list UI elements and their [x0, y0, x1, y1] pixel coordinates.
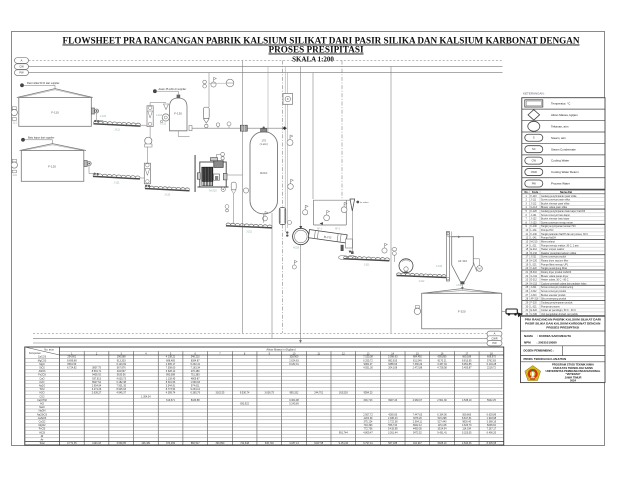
svg-text:Cooling Water: Cooling Water — [551, 159, 569, 163]
svg-text:8170.21: 8170.21 — [438, 359, 447, 362]
svg-text:4265.65: 4265.65 — [388, 413, 397, 416]
svg-text:Mixer pelarut: Mixer pelarut — [541, 240, 555, 243]
svg-text:8.773,54: 8.773,54 — [166, 388, 176, 391]
svg-text:194,947: 194,947 — [413, 442, 422, 445]
svg-text:8.813,95: 8.813,95 — [462, 359, 472, 362]
svg-text:J-122: J-122 — [531, 218, 538, 221]
svg-text:R210: R210 — [260, 171, 268, 175]
svg-text:7.508,60: 7.508,60 — [166, 366, 176, 369]
svg-text:Gudang penyimpanan batu kapur: Gudang penyimpanan batu kapur CaCO3 — [541, 210, 586, 213]
svg-text:J-123: J-123 — [164, 193, 171, 196]
svg-text:F-140: F-140 — [531, 233, 538, 236]
svg-text:G-311: G-311 — [531, 275, 538, 278]
svg-text:S: S — [533, 136, 535, 140]
svg-text:E-322: E-322 — [531, 309, 538, 312]
svg-text:833,922: 833,922 — [240, 402, 249, 405]
svg-text:Pompa HCl: Pompa HCl — [541, 229, 554, 232]
svg-text:Air: Air — [41, 439, 44, 442]
svg-text:3162.55: 3162.55 — [216, 392, 225, 395]
svg-text:Screw conveyor produk: Screw conveyor produk — [541, 256, 567, 259]
svg-text:6.629,89: 6.629,89 — [487, 413, 497, 416]
svg-text:4.538,19: 4.538,19 — [462, 399, 472, 402]
svg-text:406,481: 406,481 — [141, 442, 150, 445]
svg-text:3.396,63: 3.396,63 — [388, 356, 398, 359]
svg-text:5.240,69: 5.240,69 — [289, 402, 299, 405]
svg-text:4.551,30: 4.551,30 — [363, 366, 373, 369]
svg-text:608,975: 608,975 — [487, 356, 496, 359]
svg-text:Kode: Kode — [532, 191, 539, 194]
svg-text:8.301,53: 8.301,53 — [166, 381, 176, 384]
svg-text:1.128,45: 1.128,45 — [166, 377, 176, 380]
svg-text:Screw conveyor batu kapur: Screw conveyor batu kapur — [541, 214, 570, 217]
svg-text:CWR: CWR — [531, 170, 537, 174]
svg-text:PROSES PRESIPITASI: PROSES PRESIPITASI — [268, 45, 363, 55]
svg-text:Al2O3: Al2O3 — [39, 370, 46, 373]
svg-text:1193.43: 1193.43 — [92, 442, 101, 445]
svg-text:567,976: 567,976 — [117, 366, 126, 369]
svg-text:F-320: F-320 — [531, 301, 538, 304]
svg-text:Pompa air proses: Pompa air proses — [541, 305, 561, 308]
svg-text:Cooling Water Return: Cooling Water Return — [551, 170, 579, 174]
svg-text:J-211: J-211 — [246, 231, 252, 234]
svg-text:9997.43: 9997.43 — [388, 399, 397, 402]
svg-text:695,835: 695,835 — [438, 356, 447, 359]
svg-text:6.194,56: 6.194,56 — [437, 413, 447, 416]
svg-text:7.336,29: 7.336,29 — [413, 363, 423, 366]
svg-text:J-312: J-312 — [418, 280, 425, 283]
svg-text:H-220: H-220 — [293, 248, 300, 250]
svg-text:2.954,94: 2.954,94 — [92, 384, 102, 387]
svg-text:2.501,66: 2.501,66 — [437, 399, 447, 402]
svg-text:Screw conveyor produk: Screw conveyor produk — [541, 290, 567, 293]
svg-text:Pompa menuju reaktor, 30 C, 1: Pompa menuju reaktor, 30 C, 1 atm — [541, 244, 579, 247]
svg-text:2.624,63: 2.624,63 — [289, 359, 299, 362]
svg-text:L-122: L-122 — [11, 175, 18, 177]
svg-text:No. arus: No. arus — [44, 349, 54, 352]
svg-text:Rotary dryer produk CaSiO3: Rotary dryer produk CaSiO3 — [541, 271, 572, 274]
svg-text:9.234,12: 9.234,12 — [190, 388, 200, 391]
svg-text:H2O: H2O — [39, 392, 44, 395]
svg-text:2.186,43: 2.186,43 — [388, 417, 398, 420]
svg-text:J-112: J-112 — [531, 202, 537, 205]
svg-text:L-321: L-321 — [531, 305, 538, 308]
svg-text:Bucket elevator pasir silika: Bucket elevator pasir silika — [541, 202, 570, 205]
svg-text:CaO: CaO — [39, 377, 44, 380]
svg-text:Na2O: Na2O — [39, 385, 45, 388]
svg-text:4450.35: 4450.35 — [413, 428, 422, 431]
svg-text:L-112: L-112 — [11, 123, 17, 125]
svg-text:Aliran Massa in (Kg/jam): Aliran Massa in (Kg/jam) — [266, 348, 295, 352]
svg-text:4.187,13: 4.187,13 — [289, 442, 299, 445]
svg-text:MgO: MgO — [39, 363, 44, 366]
svg-text:Ca(OH)2: Ca(OH)2 — [37, 399, 47, 402]
svg-text:2215.39: 2215.39 — [364, 417, 373, 420]
svg-text:6.182,38: 6.182,38 — [116, 381, 126, 384]
svg-text:114,194: 114,194 — [462, 428, 471, 431]
svg-text:PRODI. TEKNOLOGI LANJUTAN: PRODI. TEKNOLOGI LANJUTAN — [524, 357, 567, 361]
svg-text:3.337,94: 3.337,94 — [437, 363, 447, 366]
svg-text:2.605,17: 2.605,17 — [166, 363, 176, 366]
svg-text:636,740: 636,740 — [265, 442, 274, 445]
svg-text:CWR: CWR — [491, 336, 497, 340]
svg-text:8.605,58: 8.605,58 — [487, 442, 497, 445]
svg-text:8.817,51: 8.817,51 — [462, 417, 472, 420]
svg-text:1.590,93: 1.590,93 — [190, 381, 200, 384]
svg-text:F-320: F-320 — [458, 310, 466, 314]
svg-text:CW: CW — [532, 159, 537, 163]
svg-text:3.274,26: 3.274,26 — [92, 388, 102, 391]
svg-text:5.232,41: 5.232,41 — [190, 363, 200, 366]
svg-text:Process Water: Process Water — [551, 182, 570, 186]
svg-text:Cooler air pendingin, 50 C - 3: Cooler air pendingin, 50 C - 30 C — [541, 309, 576, 312]
svg-text:E-212: E-212 — [531, 248, 538, 251]
svg-text:J-121: J-121 — [114, 182, 121, 185]
svg-text:PW: PW — [19, 71, 24, 75]
svg-text:9.151,90: 9.151,90 — [339, 442, 349, 445]
svg-text:J-311: J-311 — [364, 263, 370, 266]
svg-text:MgCl2: MgCl2 — [38, 424, 46, 427]
svg-text:515,298: 515,298 — [438, 417, 447, 420]
svg-text:K2O: K2O — [40, 381, 45, 384]
svg-text:811,549: 811,549 — [413, 359, 422, 362]
svg-text:8391.59: 8391.59 — [67, 363, 76, 366]
svg-text:2.722,38: 2.722,38 — [388, 420, 398, 423]
svg-text:NPM : 20031010080: NPM : 20031010080 — [524, 341, 557, 345]
svg-text:J-211: J-211 — [531, 256, 537, 259]
svg-text:5.455,87: 5.455,87 — [462, 366, 472, 369]
svg-text:527,440: 527,440 — [438, 420, 447, 423]
svg-text:U-330: U-330 — [531, 313, 538, 316]
svg-text:HCl: HCl — [40, 403, 45, 406]
svg-text:F-120: F-120 — [531, 210, 538, 213]
svg-text:9.304,98: 9.304,98 — [289, 399, 299, 402]
svg-text:AlCl3: AlCl3 — [39, 431, 45, 434]
svg-text:2.507,72: 2.507,72 — [363, 413, 373, 416]
svg-text:Gudang penyimpanan produk: Gudang penyimpanan produk — [541, 301, 573, 304]
svg-text:9384.27: 9384.27 — [364, 363, 373, 366]
svg-text:F-120: F-120 — [48, 165, 56, 169]
svg-text:751,383: 751,383 — [191, 374, 200, 377]
svg-text:J-313: J-313 — [531, 294, 538, 297]
svg-text:CW: CW — [19, 65, 24, 69]
svg-text:7.150,38: 7.150,38 — [363, 356, 373, 359]
svg-text:Temperatur, °C: Temperatur, °C — [551, 102, 570, 106]
svg-text:8927.54: 8927.54 — [92, 381, 101, 384]
svg-text:A: A — [494, 332, 496, 336]
svg-text:574,611: 574,611 — [191, 384, 200, 387]
svg-text:8.925,93: 8.925,93 — [116, 388, 126, 391]
svg-text:890,388: 890,388 — [166, 374, 175, 377]
svg-text:375,124: 375,124 — [364, 420, 373, 423]
svg-text:6207.58: 6207.58 — [314, 442, 323, 445]
svg-text:Heater udara, 30 C - 80 C: Heater udara, 30 C - 80 C — [541, 279, 569, 282]
svg-text:882,815: 882,815 — [388, 359, 397, 362]
svg-text:5902.25: 5902.25 — [487, 399, 496, 402]
svg-text:NaCl: NaCl — [39, 406, 45, 409]
svg-text:684,492: 684,492 — [413, 356, 422, 359]
svg-text:3.261,44: 3.261,44 — [388, 431, 398, 434]
svg-text:2.472,88: 2.472,88 — [413, 366, 423, 369]
svg-text:646,713: 646,713 — [364, 399, 373, 402]
svg-text:Total: Total — [39, 442, 45, 445]
svg-text:7.447,63: 7.447,63 — [413, 413, 423, 416]
svg-text:115,128: 115,128 — [438, 424, 447, 427]
svg-text:2218.72: 2218.72 — [487, 366, 496, 369]
svg-text:SC: SC — [532, 147, 536, 151]
svg-text:1.354,34: 1.354,34 — [141, 395, 151, 398]
svg-text:4.846,36: 4.846,36 — [462, 442, 472, 445]
svg-text:913,333: 913,333 — [117, 359, 126, 362]
svg-text:AF 316: AF 316 — [458, 259, 467, 263]
svg-text:244,701: 244,701 — [314, 392, 323, 395]
svg-text:J-311: J-311 — [531, 286, 537, 289]
svg-text:F-110: F-110 — [531, 195, 538, 198]
svg-text:8433.88: 8433.88 — [191, 399, 200, 402]
svg-text:3514.54: 3514.54 — [438, 428, 447, 431]
svg-text:328,900: 328,900 — [290, 356, 299, 359]
svg-text:9.530,74: 9.530,74 — [240, 392, 250, 395]
svg-text:204,108: 204,108 — [388, 366, 397, 369]
svg-text:A: A — [21, 58, 23, 62]
svg-text:5928.19: 5928.19 — [438, 442, 447, 445]
svg-text:L-221: L-221 — [531, 263, 538, 266]
svg-text:7.163,34: 7.163,34 — [190, 366, 200, 369]
svg-text:SiO2: SiO2 — [39, 367, 45, 370]
svg-text:J-115: J-115 — [100, 115, 107, 118]
svg-text:6.490,20: 6.490,20 — [487, 431, 497, 434]
svg-text:Tangki pelarutan NaOH dan air: Tangki pelarutan NaOH dan air proses, 30… — [541, 233, 588, 236]
svg-text:Asam 35 wt% dr supplier: Asam 35 wt% dr supplier — [159, 88, 187, 91]
svg-text:AF-2: AF-2 — [335, 228, 341, 231]
svg-text:F-130: F-130 — [531, 225, 538, 228]
svg-text:743,493: 743,493 — [364, 424, 373, 427]
svg-text:ke udara: ke udara — [360, 201, 369, 204]
svg-text:5630.56: 5630.56 — [117, 374, 126, 377]
svg-text:2024: 2024 — [570, 379, 576, 383]
svg-text:8.951,85: 8.951,85 — [462, 363, 472, 366]
svg-text:J-112: J-112 — [156, 114, 163, 117]
svg-text:No.: No. — [525, 191, 529, 194]
svg-text:6922.12: 6922.12 — [413, 424, 422, 427]
svg-text:742,648: 742,648 — [240, 442, 249, 445]
svg-text:DOSEN PEMBIMBING :: DOSEN PEMBIMBING : — [524, 349, 555, 353]
svg-text:3376.26: 3376.26 — [413, 417, 422, 420]
svg-text:9.415,98: 9.415,98 — [388, 428, 398, 431]
svg-text:3.544,91: 3.544,91 — [166, 384, 176, 387]
svg-text:170: 170 — [261, 139, 266, 143]
svg-text:556,744: 556,744 — [388, 424, 397, 427]
svg-text:SKALA 1:200: SKALA 1:200 — [292, 55, 334, 63]
svg-text:973,299: 973,299 — [166, 442, 175, 445]
svg-text:991,744: 991,744 — [339, 431, 348, 434]
svg-text:PROSES PRESIPITASI: PROSES PRESIPITASI — [546, 326, 579, 330]
svg-text:Screw conveyor pasir silika: Screw conveyor pasir silika — [541, 199, 571, 202]
svg-text:8208.94: 8208.94 — [487, 424, 496, 427]
svg-text:3.509,85: 3.509,85 — [116, 442, 126, 445]
svg-text:7.901,35: 7.901,35 — [116, 384, 126, 387]
svg-text:Unit pengolahan limbah cair pa: Unit pengolahan limbah cair pabrik — [541, 313, 579, 316]
svg-text:Rotary drum vacuum filter: Rotary drum vacuum filter — [541, 260, 569, 263]
svg-text:Batu kapur dari supplier: Batu kapur dari supplier — [28, 137, 55, 140]
svg-text:Nama Alat: Nama Alat — [560, 191, 572, 194]
svg-text:4.945,37: 4.945,37 — [116, 392, 126, 395]
svg-text:6.365,79: 6.365,79 — [190, 392, 200, 395]
svg-text:9385.63: 9385.63 — [388, 363, 397, 366]
svg-text:J-312: J-312 — [531, 290, 538, 293]
svg-text:5.104,28: 5.104,28 — [487, 363, 497, 366]
svg-text:PW: PW — [532, 182, 537, 186]
svg-text:3.628,12: 3.628,12 — [166, 370, 176, 373]
svg-text:569,666: 569,666 — [462, 413, 471, 416]
svg-text:Bucket elevator batu kapur: Bucket elevator batu kapur — [541, 218, 570, 221]
svg-text:4.138,21: 4.138,21 — [166, 356, 176, 359]
svg-text:Pompa filtrat menuju UPL: Pompa filtrat menuju UPL — [541, 263, 569, 266]
svg-text:Fe2O3: Fe2O3 — [38, 374, 46, 377]
svg-text:772,736: 772,736 — [364, 428, 373, 431]
svg-text:2.639,27: 2.639,27 — [92, 392, 102, 395]
svg-text:6.123,69: 6.123,69 — [116, 363, 126, 366]
svg-text:5762.83: 5762.83 — [487, 359, 496, 362]
svg-text:8.699,68: 8.699,68 — [67, 359, 77, 362]
svg-text:4809.87: 4809.87 — [191, 377, 200, 380]
svg-text:9405.92: 9405.92 — [92, 374, 101, 377]
svg-text:J-121: J-121 — [531, 214, 538, 217]
svg-text:882,517: 882,517 — [191, 442, 200, 445]
svg-text:9.431,41: 9.431,41 — [437, 431, 447, 434]
svg-text:Pasir silika 50 th dari suppli: Pasir silika 50 th dari supplier — [27, 82, 60, 85]
svg-text:5472.52: 5472.52 — [413, 431, 422, 434]
svg-text:J-111: J-111 — [114, 129, 120, 132]
svg-text:J-313: J-313 — [436, 265, 443, 268]
svg-text:J-111: J-111 — [531, 199, 537, 202]
svg-text:8.591,71: 8.591,71 — [92, 370, 102, 373]
svg-text:196,568: 196,568 — [117, 356, 126, 359]
svg-text:Gudang penyimpanan pasir silik: Gudang penyimpanan pasir silika — [541, 195, 577, 198]
svg-text:AF-1: AF-1 — [317, 228, 323, 231]
svg-text:Steam Condensate: Steam Condensate — [551, 147, 576, 151]
svg-text:FeCl3: FeCl3 — [39, 428, 46, 431]
svg-text:4.809,47: 4.809,47 — [363, 431, 373, 434]
svg-text:4.630,73: 4.630,73 — [116, 377, 126, 380]
svg-text:Tangki penyimpanan larutan HCl: Tangki penyimpanan larutan HCl — [541, 225, 576, 228]
svg-text:9594.23: 9594.23 — [364, 392, 373, 395]
svg-text:F-130: F-130 — [174, 112, 182, 116]
svg-text:Screw conveyor produk kering: Screw conveyor produk kering — [541, 286, 574, 289]
svg-text:346,210: 346,210 — [191, 356, 200, 359]
svg-text:204,537: 204,537 — [117, 370, 126, 373]
svg-text:1.918,98: 1.918,98 — [487, 417, 497, 420]
svg-text:L-211: L-211 — [531, 244, 538, 247]
svg-text:6.255,72: 6.255,72 — [363, 359, 373, 362]
svg-text:5.323,55: 5.323,55 — [462, 431, 472, 434]
svg-text:9826.40: 9826.40 — [462, 420, 471, 423]
svg-text:J-316: J-316 — [456, 285, 462, 287]
svg-text:NAMA : KURNIA SARI MEILIT: NAMA : KURNIA SARI MEILITA — [524, 334, 572, 338]
svg-text:M-210: M-210 — [209, 189, 217, 193]
svg-text:M: M — [478, 267, 480, 271]
svg-text:660,189: 660,189 — [462, 356, 471, 359]
svg-text:3.636,75: 3.636,75 — [265, 392, 275, 395]
svg-text:F-110: F-110 — [51, 111, 59, 115]
svg-text:CaSiO3: CaSiO3 — [38, 417, 47, 420]
svg-text:163,518: 163,518 — [339, 392, 348, 395]
svg-text:2.564,11: 2.564,11 — [413, 420, 423, 423]
svg-text:L-131: L-131 — [531, 229, 538, 232]
svg-text:688,485: 688,485 — [166, 359, 175, 362]
svg-text:TiO2: TiO2 — [39, 388, 45, 391]
svg-text:9.797,41: 9.797,41 — [363, 442, 373, 445]
svg-text:E-312: E-312 — [531, 279, 538, 282]
svg-text:6.724,82: 6.724,82 — [67, 366, 77, 369]
svg-text:3.368,16: 3.368,16 — [487, 420, 497, 423]
svg-text:8.182,31: 8.182,31 — [289, 363, 299, 366]
svg-text:PW: PW — [492, 341, 497, 345]
svg-text:390,890: 390,890 — [216, 442, 225, 445]
svg-text:895,332: 895,332 — [290, 392, 299, 395]
svg-text:KETERANGAN :: KETERANGAN : — [523, 92, 546, 96]
svg-text:L-131: L-131 — [160, 124, 167, 126]
svg-text:Tekanan, atm: Tekanan, atm — [551, 124, 569, 128]
svg-text:CaCl2: CaCl2 — [39, 421, 46, 424]
svg-text:619,671: 619,671 — [166, 399, 175, 402]
svg-text:Aliran Massa, kg/jam: Aliran Massa, kg/jam — [551, 113, 578, 117]
svg-text:Steam, atm: Steam, atm — [551, 136, 566, 140]
svg-text:3807.75: 3807.75 — [92, 366, 101, 369]
svg-text:B-310: B-310 — [531, 271, 538, 274]
svg-text:MgCO3: MgCO3 — [38, 359, 47, 362]
svg-text:4.728,58: 4.728,58 — [437, 366, 447, 369]
svg-text:937,613: 937,613 — [92, 377, 101, 380]
svg-text:254,601: 254,601 — [67, 356, 76, 359]
svg-text:H-220: H-220 — [531, 260, 538, 263]
svg-text:4.399,74: 4.399,74 — [166, 392, 176, 395]
svg-text:Blower udara panas dryer: Blower udara panas dryer — [541, 275, 569, 278]
svg-text:4.960,67: 4.960,67 — [413, 399, 423, 402]
svg-text:470,280: 470,280 — [191, 370, 200, 373]
svg-text:567,188: 567,188 — [388, 442, 397, 445]
svg-text:9.771,35: 9.771,35 — [67, 442, 77, 445]
svg-text:7.267,17: 7.267,17 — [487, 428, 497, 431]
svg-text:Na2SiO3: Na2SiO3 — [37, 413, 48, 416]
svg-text:4.626,70: 4.626,70 — [462, 424, 472, 427]
svg-text:CaCO3: CaCO3 — [38, 356, 47, 359]
svg-text:M-210: M-210 — [531, 240, 538, 243]
svg-text:8394.87: 8394.87 — [191, 359, 200, 362]
svg-text:Heater umpan reaktor: Heater umpan reaktor — [541, 248, 564, 251]
svg-text:NaOH: NaOH — [39, 410, 46, 413]
svg-text:(1 atm): (1 atm) — [260, 142, 268, 146]
svg-text:Bucket elevator produk: Bucket elevator produk — [541, 294, 566, 297]
svg-text:CO2: CO2 — [39, 395, 45, 398]
